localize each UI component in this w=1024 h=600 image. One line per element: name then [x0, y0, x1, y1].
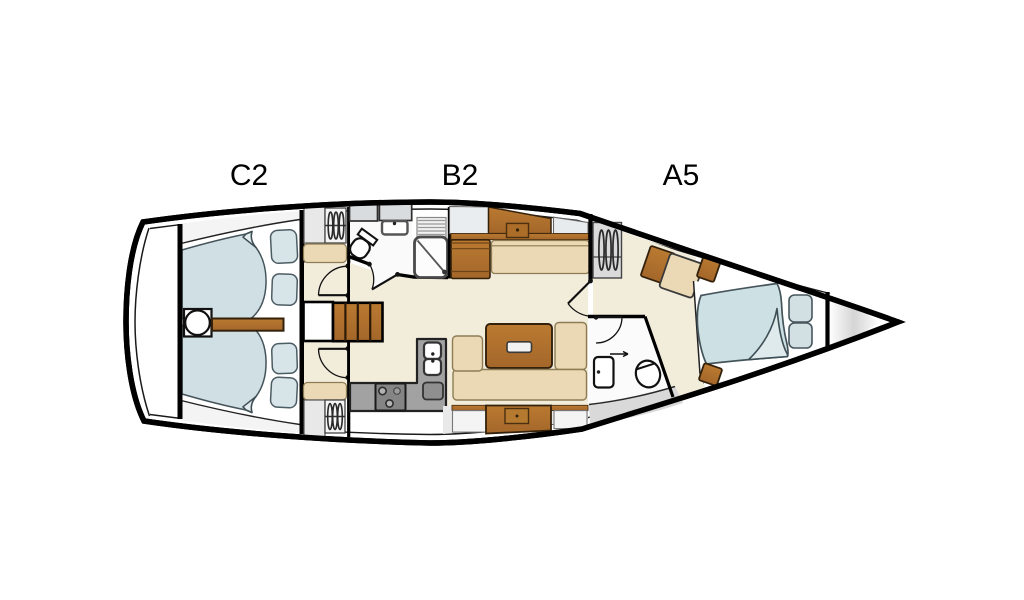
svg-text:C2: C2 — [230, 159, 268, 192]
svg-text:A5: A5 — [663, 159, 700, 192]
svg-text:B2: B2 — [442, 159, 479, 192]
